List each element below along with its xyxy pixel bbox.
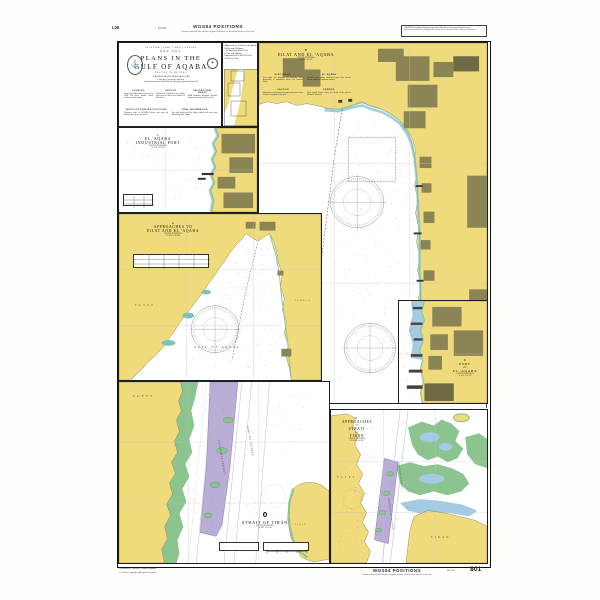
panel-a-subtitle: DEPTHS IN METRES SCALE 1:100 000 — [129, 233, 217, 238]
sounding-mark — [237, 341, 238, 342]
wgs84-positions-bottom: WGS84 POSITIONS — [352, 568, 442, 573]
sounding-mark — [360, 496, 361, 497]
sounding-mark — [384, 308, 385, 309]
sounding-mark — [166, 161, 167, 162]
sounding-mark — [259, 299, 260, 300]
sounding-mark — [401, 171, 402, 172]
sounding-mark — [257, 286, 258, 287]
panel-b-subtitle: DEPTHS IN METRES SCALE 1:12 500 — [261, 57, 351, 62]
chart-number: 801 — [470, 566, 481, 573]
sounding-mark — [255, 313, 256, 314]
sounding-mark — [363, 466, 364, 467]
publication-line-1: Published at Taunton, United Kingdom — [119, 568, 156, 570]
sounding-mark — [260, 249, 261, 250]
sounding-mark — [369, 295, 370, 296]
sounding-mark — [356, 154, 357, 155]
sounding-mark — [402, 138, 403, 139]
sounding-mark — [187, 175, 188, 176]
sounding-mark — [393, 355, 394, 356]
sounding-mark — [296, 392, 297, 393]
sounding-mark — [368, 185, 369, 186]
sounding-mark — [391, 204, 392, 205]
sounding-mark — [413, 315, 414, 316]
sounding-mark — [194, 162, 195, 163]
sounding-mark — [396, 217, 397, 218]
sounding-mark — [351, 145, 352, 146]
sounding-mark — [404, 345, 405, 346]
sounding-mark — [363, 202, 364, 203]
sounding-mark — [365, 255, 366, 256]
sounding-mark — [271, 352, 272, 353]
sounding-mark — [366, 257, 367, 258]
sounding-mark — [279, 406, 280, 407]
note-heading: NAVIGATIONAL MARKS — [188, 90, 217, 94]
sounding-mark — [349, 136, 350, 137]
sounding-mark — [260, 273, 261, 274]
sounding-mark — [249, 402, 250, 403]
sounding-mark — [172, 171, 173, 172]
sounding-mark — [374, 457, 375, 458]
sounding-mark — [357, 495, 358, 496]
sounding-mark — [337, 219, 338, 220]
egypt-label-a: EGYPT — [135, 304, 155, 307]
sounding-mark — [339, 544, 340, 545]
sounding-mark — [209, 479, 210, 480]
sounding-mark — [410, 237, 411, 238]
sounding-mark — [237, 287, 238, 288]
sounding-mark — [408, 507, 409, 508]
sounding-mark — [356, 526, 357, 527]
sounding-mark — [263, 338, 264, 339]
top-left-small-text: INT 801 — [158, 27, 166, 30]
series-line: INTERNATIONAL CHART SERIES — [119, 47, 222, 49]
sounding-mark — [333, 225, 334, 226]
panel-c-tide-table — [123, 194, 153, 206]
sounding-mark — [333, 162, 334, 163]
note-body: Numerous uncharted mooring buoys exist c… — [263, 92, 303, 97]
sounding-mark — [225, 482, 226, 483]
sounding-mark — [180, 193, 181, 194]
sounding-mark — [398, 191, 399, 192]
sounding-mark — [377, 323, 378, 324]
sounding-mark — [401, 501, 402, 502]
sounding-mark — [246, 277, 247, 278]
sounding-mark — [243, 416, 244, 417]
sounding-mark — [403, 130, 404, 131]
sounding-mark — [299, 429, 300, 430]
sounding-mark — [214, 311, 215, 312]
sounding-mark — [246, 482, 247, 483]
panel-b-note-1: ELAT (EILAT) Port radio and pilotage are… — [263, 74, 303, 83]
sounding-mark — [358, 451, 359, 452]
sounding-mark — [391, 267, 392, 268]
sounding-mark — [268, 324, 269, 325]
sounding-mark — [333, 232, 334, 233]
sounding-mark — [377, 283, 378, 284]
sounding-mark — [375, 245, 376, 246]
sounding-mark — [379, 172, 380, 173]
sounding-mark — [221, 391, 222, 392]
sounding-mark — [187, 360, 188, 361]
sounding-mark — [412, 272, 413, 273]
sounding-mark — [371, 449, 372, 450]
sounding-mark — [245, 312, 246, 313]
sounding-mark — [199, 476, 200, 477]
tiran-label-e: TIRAN — [431, 536, 451, 539]
sounding-mark — [260, 409, 261, 410]
sounding-mark — [252, 313, 253, 314]
sounding-mark — [278, 251, 279, 252]
sounding-mark — [377, 453, 378, 454]
sounding-mark — [410, 331, 411, 332]
sounding-mark — [244, 287, 245, 288]
sounding-mark — [341, 139, 342, 140]
sounding-mark — [363, 139, 364, 140]
sounding-mark — [376, 172, 377, 173]
sounding-mark — [343, 125, 344, 126]
sounding-mark — [253, 433, 254, 434]
islet-top-right-e — [453, 414, 469, 422]
sounding-mark — [148, 156, 149, 157]
sounding-mark — [381, 244, 382, 245]
panel-f-scale-bar — [263, 542, 309, 551]
sounding-mark — [364, 525, 365, 526]
sounding-mark — [357, 218, 358, 219]
sounding-mark — [265, 309, 266, 310]
sounding-mark — [241, 288, 242, 289]
note-body: Vessels must obtain clearance from Port … — [307, 77, 351, 82]
sounding-mark — [142, 154, 143, 155]
sounding-mark — [358, 130, 359, 131]
sounding-mark — [342, 170, 343, 171]
sounding-mark — [357, 520, 358, 521]
sounding-mark — [339, 541, 340, 542]
sounding-mark — [197, 350, 198, 351]
sounding-mark — [230, 298, 231, 299]
sounding-mark — [271, 288, 272, 289]
sounding-mark — [344, 269, 345, 270]
sounding-mark — [337, 117, 338, 118]
sounding-mark — [239, 272, 240, 273]
sounding-mark — [231, 472, 232, 473]
sounding-mark — [351, 508, 352, 509]
panel-f-title: F STRAIT OF TIRĀN DEPTHS IN METRES SCALE… — [219, 502, 311, 530]
wgs84-positions-top: WGS84 POSITIONS — [168, 24, 268, 29]
wgs84-subtext-bottom: Positions obtained from satellite naviga… — [342, 574, 452, 576]
sounding-mark — [243, 291, 244, 292]
sounding-mark — [218, 417, 219, 418]
note-body: Submarine pipelines and cables may exist… — [156, 93, 185, 100]
sounding-mark — [292, 394, 293, 395]
title-block-panel: INTERNATIONAL CHART SERIES RED SEA PLANS… — [118, 42, 222, 127]
sounding-mark — [360, 209, 361, 210]
sounding-mark — [336, 117, 337, 118]
sounding-mark — [344, 498, 345, 499]
sounding-mark — [260, 310, 261, 311]
sounding-mark — [340, 376, 341, 377]
sounding-mark — [241, 461, 242, 462]
sounding-mark — [297, 403, 298, 404]
sounding-mark — [374, 453, 375, 454]
sounding-mark — [398, 499, 399, 500]
sounding-mark — [360, 209, 361, 210]
sounding-mark — [250, 278, 251, 279]
sounding-mark — [413, 341, 414, 342]
panel-b-title: B EILAT AND EL 'AQABA DEPTHS IN METRES S… — [261, 48, 351, 62]
sounding-mark — [383, 202, 384, 203]
sounding-mark — [309, 397, 310, 398]
sounding-mark — [409, 343, 410, 344]
sounding-mark — [246, 254, 247, 255]
tidal-table-grid — [134, 255, 210, 269]
sounding-mark — [246, 267, 247, 268]
sounding-mark — [355, 494, 356, 495]
chart-sheet: L08 INT 801 WGS84 POSITIONS Positions ob… — [0, 0, 600, 600]
sounding-mark — [404, 389, 405, 390]
sounding-mark — [396, 261, 397, 262]
sounding-mark — [239, 420, 240, 421]
sounding-mark — [361, 540, 362, 541]
sounding-mark — [335, 163, 336, 164]
sounding-mark — [362, 334, 363, 335]
sounding-mark — [286, 419, 287, 420]
panel-a-approaches-eilat-el-aqaba: A APPROACHES TO EILAT AND EL 'AQABA DEPT… — [118, 213, 322, 381]
sounding-mark — [255, 255, 256, 256]
sounding-mark — [261, 274, 262, 275]
sounding-mark — [219, 399, 220, 400]
index-map — [224, 69, 258, 126]
sounding-mark — [338, 306, 339, 307]
note-line-2: Mariners are advised to navigate with ca… — [404, 29, 484, 31]
sounding-mark — [259, 357, 260, 358]
sounding-mark — [130, 152, 131, 153]
sounding-mark — [406, 507, 407, 508]
sounding-mark — [265, 328, 266, 329]
panel-e-approaches-strait-of-tiran: E. APPROACHES TO STRAIT OF TIRAN DEPTHS … — [330, 409, 488, 564]
sounding-mark — [381, 225, 382, 226]
jordan-label-a: JORDAN — [295, 300, 311, 302]
sounding-mark — [237, 316, 238, 317]
sounding-mark — [328, 123, 329, 124]
sounding-mark — [419, 507, 420, 508]
sounding-mark — [241, 443, 242, 444]
panel-f-legend-box — [219, 542, 259, 551]
sounding-mark — [298, 398, 299, 399]
sounding-mark — [240, 444, 241, 445]
egypt-label-f: EGYPT — [133, 394, 154, 398]
sounding-mark — [410, 215, 411, 216]
sounding-mark — [363, 454, 364, 455]
panel-d-title: D PORT OF EL 'AQABA DEPTHS IN METRES SCA… — [443, 359, 487, 378]
sounding-mark — [201, 188, 202, 189]
sounding-mark — [180, 196, 181, 197]
caution-note-box: CAUTION: Uncharted dangers may exist wit… — [401, 25, 487, 37]
sounding-mark — [255, 400, 256, 401]
gulf-of-aqaba-label: GULF OF AQABA — [181, 345, 253, 349]
sounding-mark — [270, 396, 271, 397]
sounding-mark — [233, 445, 234, 446]
panel-f-strait-of-tiran: EGYPT ENTERPRISE PASSAGE GRAFTON PASSAGE… — [118, 381, 330, 564]
sounding-mark — [407, 352, 408, 353]
sounding-mark — [279, 426, 280, 427]
panel-a-map — [119, 214, 321, 380]
sounding-mark — [192, 491, 193, 492]
sounding-mark — [364, 163, 365, 164]
sounding-mark — [202, 152, 203, 153]
sounding-mark — [234, 498, 235, 499]
sounding-mark — [275, 425, 276, 426]
wgs84-subtext-top: Positions obtained from satellite naviga… — [158, 31, 278, 33]
sounding-mark — [232, 530, 233, 531]
panel-e-title: E. APPROACHES TO STRAIT OF TIRAN DEPTHS … — [333, 416, 381, 443]
sounding-mark — [399, 230, 400, 231]
title-note-4: SATELLITE-DERIVED POSITIONS Positions re… — [124, 109, 168, 116]
sounding-mark — [381, 138, 382, 139]
sounding-mark — [357, 341, 358, 342]
sounding-mark — [343, 505, 344, 506]
title-note-3: NAVIGATIONAL MARKS IALA Maritime Buoyage… — [188, 90, 217, 99]
sounding-mark — [251, 499, 252, 500]
note-heading: SATELLITE-DERIVED POSITIONS — [124, 109, 168, 111]
sounding-mark — [397, 136, 398, 137]
sounding-mark — [266, 254, 267, 255]
sounding-mark — [346, 511, 347, 512]
sounding-mark — [234, 289, 235, 290]
panel-c-el-aqaba-industrial-port: C EL 'AQABA INDUSTRIAL PORT DEPTHS IN ME… — [118, 127, 258, 213]
sounding-mark — [412, 244, 413, 245]
sounding-mark — [248, 360, 249, 361]
sounding-mark — [405, 313, 406, 314]
sounding-mark — [414, 363, 415, 364]
sounding-mark — [358, 225, 359, 226]
sounding-mark — [261, 450, 262, 451]
sounding-mark — [355, 487, 356, 488]
sounding-mark — [354, 134, 355, 135]
sounding-mark — [215, 281, 216, 282]
sounding-mark — [214, 341, 215, 342]
sounding-mark — [225, 412, 226, 413]
sounding-mark — [335, 124, 336, 125]
sounding-mark — [369, 371, 370, 372]
sounding-mark — [258, 341, 259, 342]
sounding-mark — [400, 134, 401, 135]
sounding-mark — [249, 367, 250, 368]
sounding-mark — [407, 389, 408, 390]
note-body: Data from Government surveys to 1998 and… — [124, 93, 153, 100]
sounding-mark — [200, 169, 201, 170]
panel-d-map — [399, 301, 487, 403]
sounding-mark — [340, 118, 341, 119]
index-list: A Approaches to Eilat and El 'Aqaba B Ei… — [225, 45, 258, 60]
sounding-mark — [195, 500, 196, 501]
sounding-mark — [271, 328, 272, 329]
panel-f-subtitle: DEPTHS IN METRES SCALE 1:50 000 — [219, 525, 311, 530]
sounding-mark — [289, 395, 290, 396]
panel-d-port-of-el-aqaba: D PORT OF EL 'AQABA DEPTHS IN METRES SCA… — [398, 300, 488, 404]
sounding-mark — [364, 142, 365, 143]
sounding-mark — [353, 316, 354, 317]
sounding-mark — [275, 249, 276, 250]
sounding-mark — [263, 264, 264, 265]
panel-b-note-2: EL 'AQABA Vessels must obtain clearance … — [307, 74, 351, 81]
sounding-mark — [263, 416, 264, 417]
compass-rose-b-lower — [342, 322, 398, 375]
sounding-mark — [231, 479, 232, 480]
panel-c-title: C EL 'AQABA INDUSTRIAL PORT DEPTHS IN ME… — [125, 133, 191, 150]
sounding-mark — [354, 232, 355, 233]
title-note-2: CAUTION Submarine pipelines and cables m… — [156, 90, 185, 99]
sounding-mark — [212, 525, 213, 526]
sounding-mark — [261, 249, 262, 250]
sounding-mark — [206, 490, 207, 491]
title-note-5: TIDAL INFORMATION For tidal levels see t… — [172, 109, 217, 116]
sounding-mark — [294, 429, 295, 430]
sounding-mark — [248, 367, 249, 368]
sounding-mark — [338, 314, 339, 315]
sounding-mark — [400, 203, 401, 204]
reef-complex-mid-e — [396, 462, 469, 495]
sounding-mark — [303, 407, 304, 408]
sounding-mark — [202, 404, 203, 405]
reef-complex-east-e — [465, 433, 487, 468]
sounding-mark — [218, 431, 219, 432]
sounding-mark — [345, 467, 346, 468]
sounding-mark — [222, 318, 223, 319]
sounding-mark — [335, 353, 336, 354]
sounding-mark — [384, 313, 385, 314]
sounding-mark — [257, 393, 258, 394]
sounding-mark — [355, 542, 356, 543]
sounding-mark — [205, 409, 206, 410]
sounding-mark — [212, 503, 213, 504]
sounding-mark — [249, 295, 250, 296]
sounding-mark — [198, 444, 199, 445]
sounding-mark — [358, 528, 359, 529]
sounding-mark — [261, 255, 262, 256]
sounding-mark — [279, 258, 280, 259]
sounding-mark — [349, 351, 350, 352]
bottom-small-text: INT 801 — [447, 570, 455, 572]
sounding-mark — [226, 295, 227, 296]
sounding-mark — [246, 327, 247, 328]
sounding-mark — [411, 397, 412, 398]
sounding-mark — [369, 237, 370, 238]
sounding-mark — [167, 189, 168, 190]
panel-a-tidal-table — [133, 254, 209, 268]
sounding-mark — [406, 197, 407, 198]
sounding-mark — [236, 263, 237, 264]
sounding-mark — [389, 341, 390, 342]
sounding-mark — [268, 248, 269, 249]
sounding-mark — [347, 275, 348, 276]
panel-d-subtitle: DEPTHS IN METRES SCALE 1:12 500 — [443, 373, 487, 378]
sounding-mark — [293, 442, 294, 443]
sounding-mark — [250, 276, 251, 277]
sounding-mark — [202, 389, 203, 390]
publication-line-2: © Crown Copyright. All rights reserved. — [119, 572, 157, 574]
compass-rose-b-upper — [327, 174, 386, 231]
sounding-mark — [340, 247, 341, 248]
sounding-mark — [402, 341, 403, 342]
egypt-label-e: EGYPT — [337, 476, 356, 479]
sounding-mark — [382, 371, 383, 372]
sounding-mark — [278, 411, 279, 412]
sounding-mark — [401, 331, 402, 332]
sounding-mark — [401, 313, 402, 314]
note-body: High speed ferries cross the head of the… — [307, 92, 351, 97]
sounding-mark — [382, 162, 383, 163]
note-body: IALA Maritime Buoyage System Region A (r… — [188, 95, 217, 100]
